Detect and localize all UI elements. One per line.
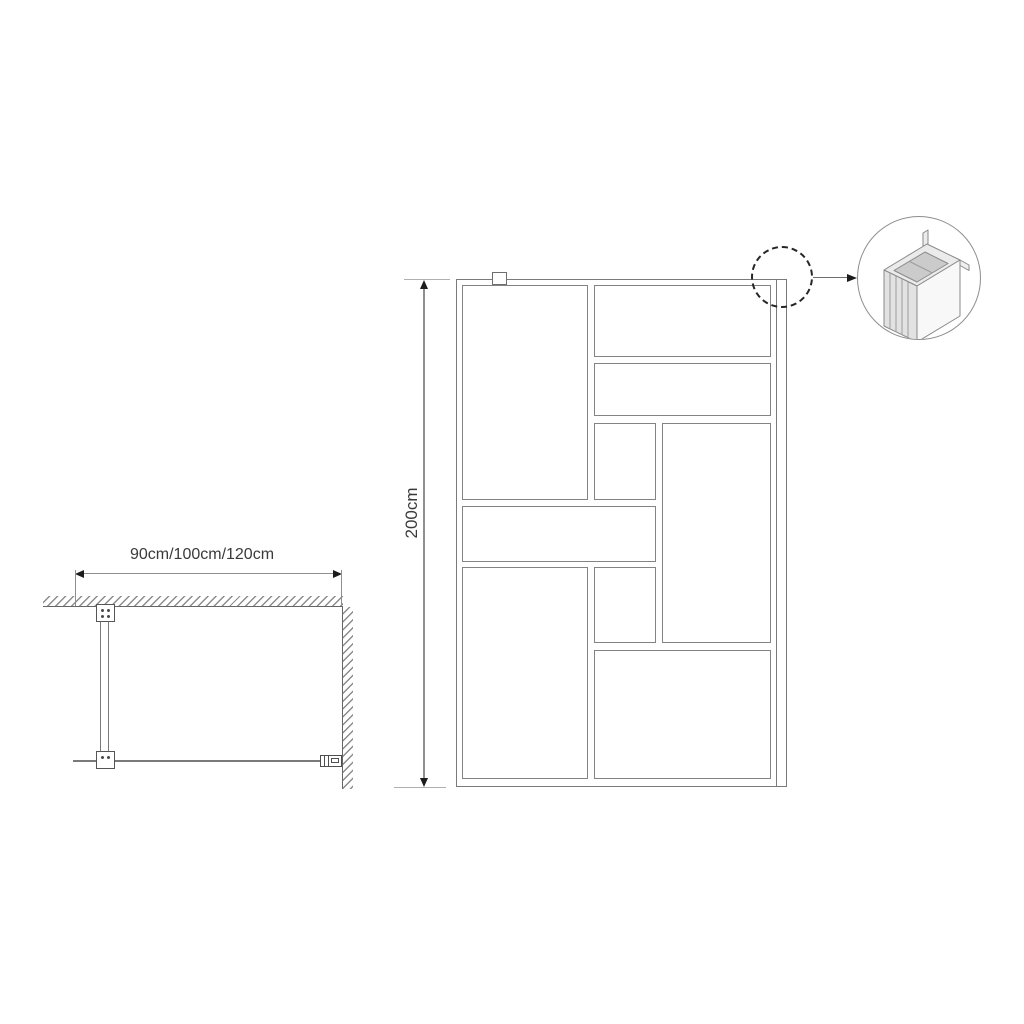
wall-profile-3d-icon [858,217,981,340]
glass-pane [594,423,656,500]
glass-pane [594,363,771,416]
glass-pane [594,650,771,779]
support-bar-connector [492,272,507,285]
detail-leader-line [813,277,850,278]
height-dim-arrow-down [420,778,428,787]
glass-pane [662,423,771,643]
glass-pane [594,567,656,643]
profile-detail-circle [857,216,981,340]
profile-side-flange [960,260,969,271]
wall-profile-strip [776,279,778,787]
front-view: 200cm [0,0,1024,1024]
glass-pane [462,506,656,562]
glass-pane [462,285,588,500]
glass-pane [594,285,771,357]
height-dim-tick-bottom [394,787,446,788]
height-dimension-line [423,287,424,779]
glass-pane [462,567,588,779]
detail-leader-arrow [847,274,857,282]
height-dimension-label: 200cm [402,487,422,538]
height-dim-arrow-up [420,280,428,289]
detail-callout-circle [751,246,813,308]
technical-diagram: 90cm/100cm/120cm [0,0,1024,1024]
